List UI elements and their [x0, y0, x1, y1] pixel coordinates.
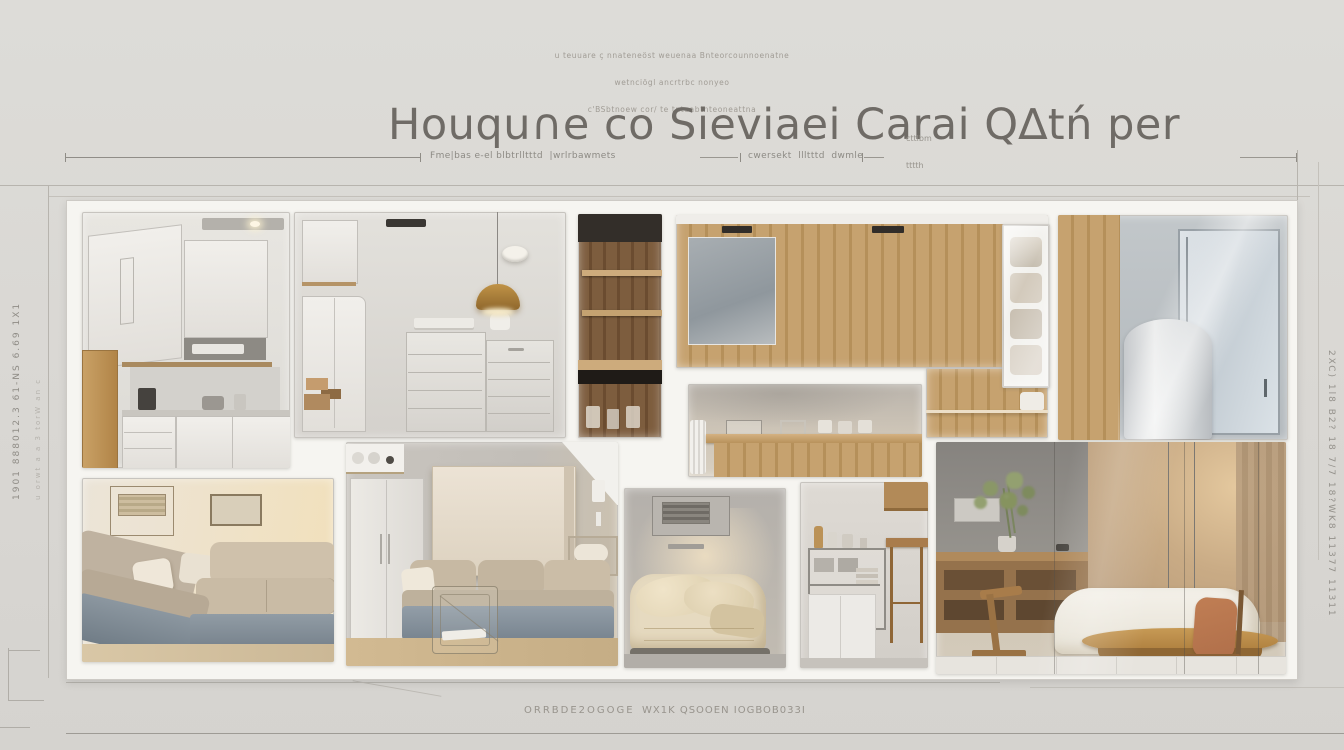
glass-sheen: [936, 442, 1286, 674]
frame-tick-small: [8, 648, 9, 700]
jar-glass: [842, 534, 853, 548]
duvet-seams: [644, 628, 754, 629]
cabinet-underside: [302, 282, 356, 286]
alcove-counter: [706, 434, 922, 443]
utility-cabinet: [808, 594, 876, 664]
room-dining: [936, 442, 1286, 674]
kitchen-base-drawers: [122, 416, 176, 468]
alcove-radiator: [690, 420, 706, 474]
kitchen-upper-cabinet-right: [184, 240, 268, 338]
kitchen-toaster: [202, 396, 224, 410]
kitchen-ceiling-cove: [202, 218, 284, 230]
ceiling-vent: [386, 219, 426, 227]
dresser-left: [406, 332, 486, 432]
frame-tick-small: [8, 650, 40, 651]
stacked-boxes: [304, 394, 330, 410]
cart-bins: [814, 558, 834, 572]
kitchen-drawer-line: [124, 448, 172, 449]
dresser-drawer-lines: [488, 362, 550, 363]
kitchen-upper-cabinet-left: [88, 224, 182, 370]
kitchen-cabinet-seam: [232, 416, 233, 468]
side-label-left-2: u orwt a a 3 torW an c: [34, 360, 42, 500]
kitchen-ceiling-light: [250, 221, 260, 227]
room-living: [82, 478, 334, 662]
dimension-tick: [65, 153, 66, 162]
ceiling-vent: [722, 226, 752, 233]
pendant-lamp: [476, 284, 520, 310]
frame-line: [1318, 162, 1319, 560]
closet-top-void: [578, 214, 662, 242]
page-title: Houqu∩e co Sieviaei Carai Q∆tń per: [388, 100, 1180, 150]
room-bedroom: [624, 488, 786, 668]
closet-dark-gap: [578, 370, 662, 384]
room-alcove: [688, 384, 922, 477]
ceiling-vent: [872, 226, 904, 233]
dresser-right: [486, 340, 554, 432]
desk-stretcher: [890, 602, 923, 604]
room-closet: [578, 214, 662, 438]
top-annotation-line2: wetnciögl ancrtrbc nonyeo: [555, 78, 790, 87]
bottom-label-left: ORRBDE2OGOGE: [524, 705, 635, 716]
dresser-handle: [508, 348, 524, 351]
kitchen-canister: [234, 394, 246, 410]
wardrobe-seam: [386, 480, 387, 658]
wall-picture-frame: [210, 494, 262, 526]
room-wood-panel: [676, 215, 1048, 368]
dimension-label-left: Fme|bas e-el blbtrlltttd |wrlrbawmets: [430, 151, 616, 161]
glass-rack: [726, 420, 762, 435]
towel-cabinet: [1002, 224, 1050, 388]
ceiling-flush-light: [502, 246, 528, 262]
dimension-line-end: [864, 157, 884, 158]
fridge-seam: [334, 298, 335, 428]
book-stack: [856, 568, 878, 572]
wall-cabinet-grill: [118, 494, 166, 516]
cart-shelf-line: [810, 584, 880, 586]
page-title-suffix-line1: cttlbm: [906, 134, 932, 143]
wall-vent: [668, 544, 704, 549]
window-room-wood-wall: [1058, 215, 1120, 440]
sofa-seat-cushions: [196, 578, 334, 614]
counter-edge: [926, 410, 1048, 413]
frame-line: [48, 185, 49, 678]
room-window: [1058, 215, 1288, 440]
sofa-seat-seam: [266, 580, 267, 612]
dimension-tick: [420, 153, 421, 162]
bottom-label-right: WX1K QSOOEN IOGBOB033I: [642, 705, 806, 716]
alcove-base-cabinet: [714, 443, 922, 477]
utility-wood-shelf: [884, 482, 928, 511]
bottle-white: [828, 532, 837, 548]
top-annotation-line1: u teuuare ç nnateneöst weuenaa Bnteorcou…: [555, 51, 790, 60]
kitchen-base-cabinet: [176, 416, 290, 468]
frame-line: [48, 196, 1310, 197]
utility-floor: [800, 658, 928, 668]
utility-cabinet-seam: [840, 596, 841, 660]
dimension-line-mid: [700, 157, 738, 158]
kitchen-cabinet-handle: [120, 257, 134, 325]
page-title-suffix: cttlbm tttth: [906, 116, 932, 188]
room-utility: [800, 482, 928, 668]
dishes-on-dresser: [414, 318, 474, 330]
bedroom-floor: [624, 654, 786, 668]
cabinet-glass-sheen: [1003, 225, 1049, 387]
window-light-wash: [1118, 215, 1288, 440]
dimension-label-right: cwersekt llltttd dwmle: [748, 151, 863, 161]
closet-glassware: [586, 406, 600, 428]
desk-leg: [890, 547, 893, 643]
kitchen-coffee-maker: [138, 388, 156, 410]
frame-tick-small: [8, 700, 44, 701]
side-label-right: 2XC) 1l8 B2? 18 7/7 18?WK8 11377 11311: [1326, 350, 1336, 550]
ceiling-unit-grill: [662, 502, 710, 524]
wood-ceiling: [676, 215, 1048, 224]
dresser-drawer-lines: [408, 354, 482, 355]
room-pendant-hall: [294, 212, 566, 438]
gray-wall-panel: [688, 237, 776, 345]
wood-desk: [886, 538, 928, 547]
side-label-left: 1901 888012.3 61-NS 6.69 1X1: [12, 330, 22, 500]
kitchen-drawer-line: [124, 432, 172, 433]
room-kitchen: [82, 212, 290, 468]
sofa-base-right: [190, 614, 334, 648]
wardrobe-handle: [380, 534, 382, 564]
towel-roll: [574, 544, 608, 562]
upper-cabinet: [302, 220, 358, 284]
page-title-suffix-line2: tttth: [906, 161, 932, 170]
frame-line: [66, 733, 1344, 734]
pendant-glow: [482, 308, 514, 316]
dimension-tick: [862, 153, 863, 162]
living-floor: [82, 644, 334, 662]
dimension-line-far-right: [1240, 157, 1297, 158]
pendant-cord: [497, 212, 498, 286]
room-lounge: [346, 442, 618, 666]
closet-shelf: [582, 310, 662, 316]
frame-line: [1030, 687, 1344, 688]
shelf-plates: [352, 452, 364, 464]
wall-holder: [592, 480, 605, 502]
dimension-tick: [740, 153, 741, 162]
closet-shelf-thick: [578, 360, 662, 370]
frame-tick-small: [0, 727, 30, 728]
toaster-small: [1020, 392, 1044, 410]
blueprint-canvas: u teuuare ç nnateneöst weuenaa Bnteorcou…: [0, 0, 1344, 750]
kitchen-shelf-items: [192, 344, 244, 354]
small-stool-object: [780, 420, 806, 435]
frame-line: [0, 185, 1344, 186]
white-containers: [818, 420, 832, 433]
dimension-line-left: [65, 157, 420, 158]
kitchen-wood-door: [82, 350, 118, 468]
frame-line: [66, 682, 1000, 683]
closet-shelf: [582, 270, 662, 276]
bottle-amber: [814, 526, 823, 548]
